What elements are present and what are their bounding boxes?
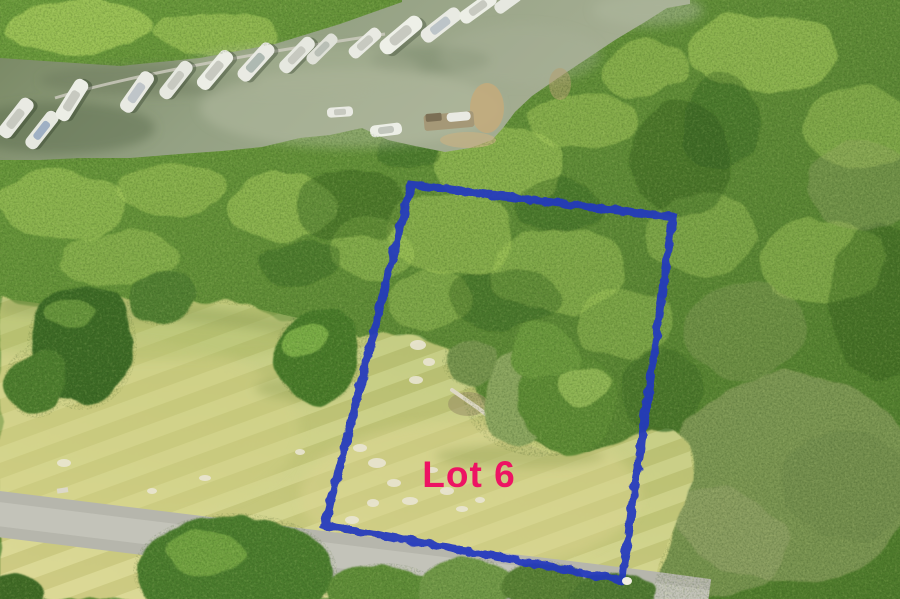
- lot-label: Lot 6: [422, 454, 515, 495]
- aerial-scene: Lot 6: [0, 0, 900, 599]
- aerial-photo: Lot 6: [0, 0, 900, 599]
- foliage-texture-light: [0, 0, 900, 599]
- corner-marker: [622, 577, 632, 585]
